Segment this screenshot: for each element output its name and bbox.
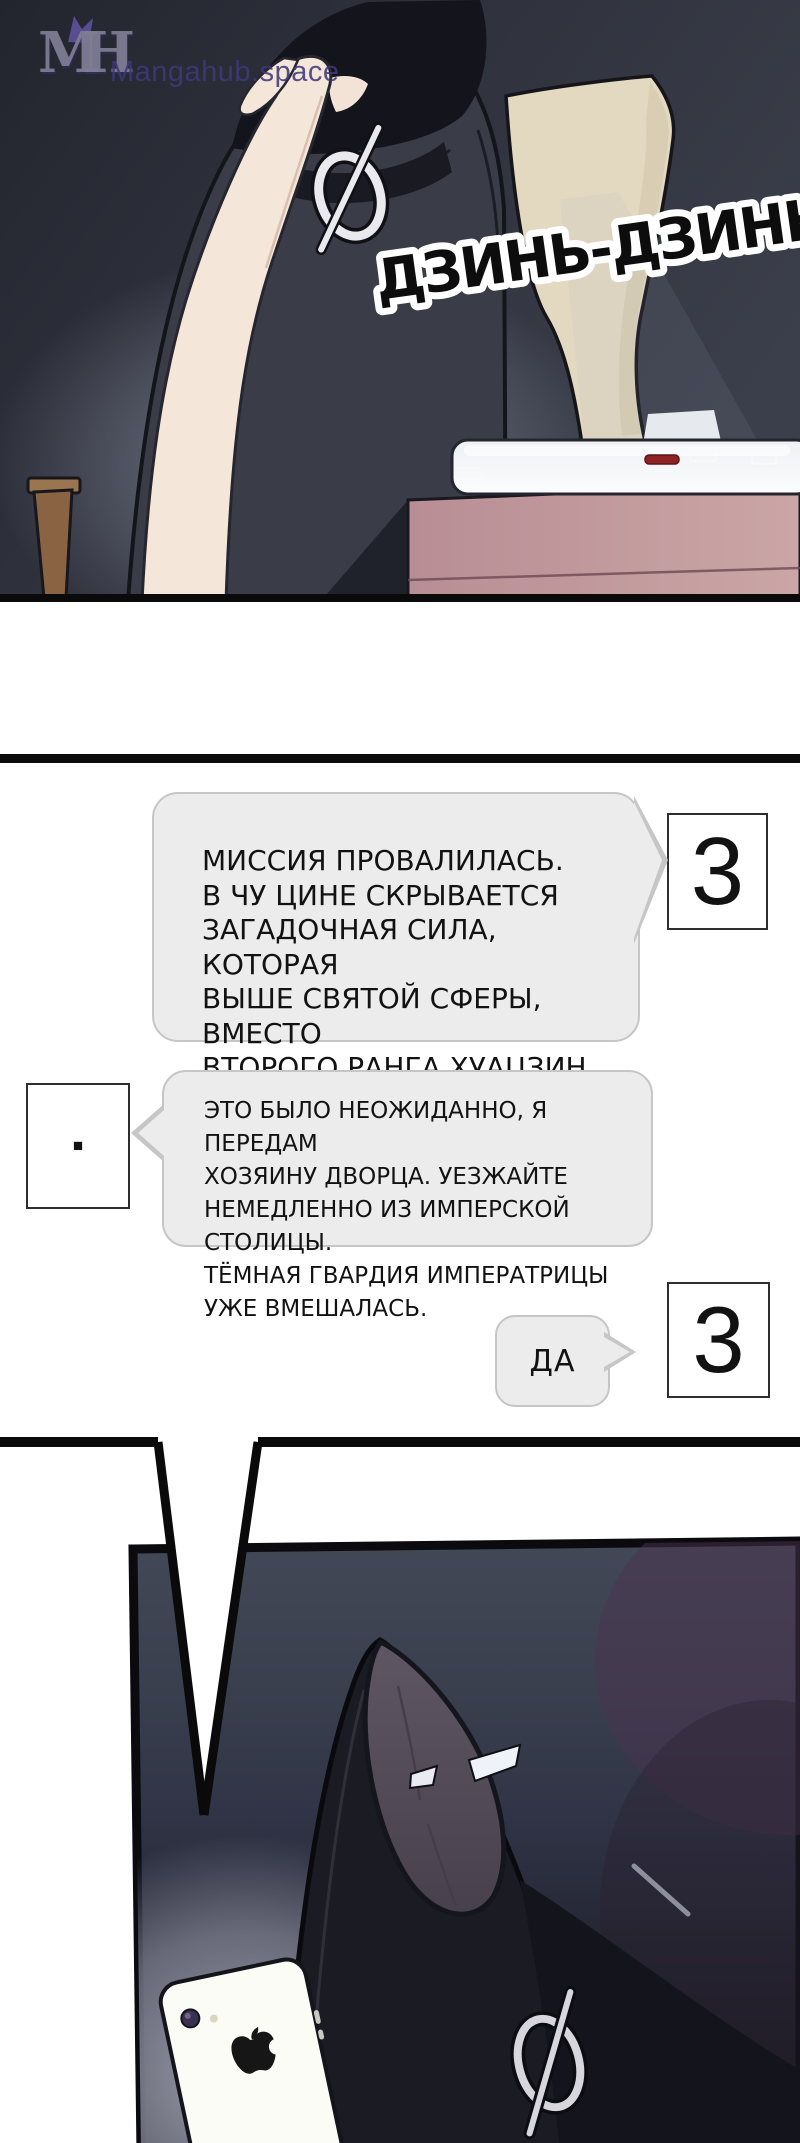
message-bubble-2: ЭТО БЫЛО НЕОЖИДАННО, Я ПЕРЕДАМ ХОЗЯИНУ Д… <box>162 1070 653 1247</box>
avatar-box-contact: 3 <box>667 813 768 930</box>
watermark-logo: MH <box>38 20 117 86</box>
avatar-square-glyph: ■ <box>73 1136 83 1156</box>
avatar-number: 3 <box>691 817 744 927</box>
avatar-box-contact: 3 <box>667 1282 770 1398</box>
message-bubble-1: МИССИЯ ПРОВАЛИЛАСЬ. В ЧУ ЦИНЕ СКРЫВАЕТСЯ… <box>152 792 640 1042</box>
separator-bar <box>0 754 800 763</box>
bubble-tail-right <box>634 794 674 946</box>
bubble-tail-left <box>130 1104 166 1164</box>
watermark-site-name: Mangahub.space <box>110 56 340 89</box>
message-text: ЭТО БЫЛО НЕОЖИДАННО, Я ПЕРЕДАМ ХОЗЯИНУ Д… <box>164 1072 651 1326</box>
message-text: ДА <box>530 1344 576 1379</box>
message-bubble-3: ДА <box>495 1315 610 1407</box>
manga-page: ДЗИНЬ-ДЗИНЬ MH Mangahub.space МИССИЯ ПРО… <box>0 0 800 2143</box>
avatar-number: 3 <box>692 1286 744 1394</box>
watermark: MH Mangahub.space <box>10 14 340 94</box>
glowing-device <box>452 440 800 494</box>
device-red-indicator <box>645 455 679 464</box>
bubble-tail-right <box>604 1330 638 1374</box>
avatar-box-user: ■ <box>26 1083 130 1209</box>
panel-bottom-scene <box>0 1430 800 2143</box>
panel1-border-bottom <box>0 594 800 602</box>
message-text: МИССИЯ ПРОВАЛИЛАСЬ. В ЧУ ЦИНЕ СКРЫВАЕТСЯ… <box>154 794 638 1086</box>
desk <box>408 484 800 602</box>
